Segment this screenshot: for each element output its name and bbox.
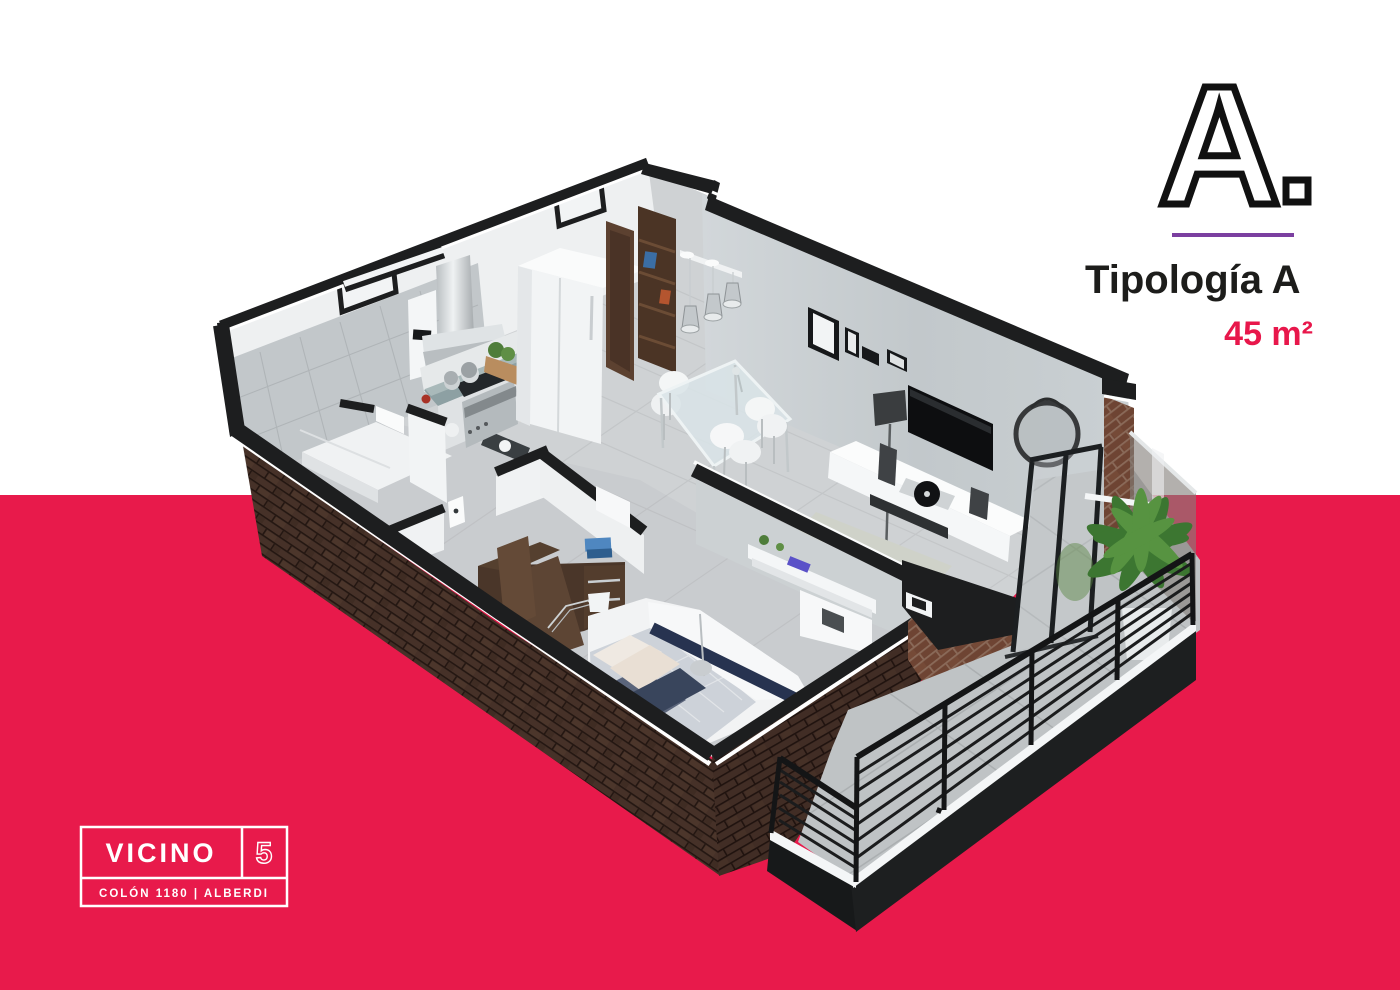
svg-text:VICINO: VICINO [105, 838, 216, 868]
svg-text:5: 5 [256, 837, 273, 870]
svg-text:COLÓN 1180 | ALBERDI: COLÓN 1180 | ALBERDI [99, 887, 269, 900]
svg-text:Tipología A: Tipología A [1085, 258, 1301, 302]
svg-text:A: A [1158, 51, 1281, 241]
svg-text:45 m²: 45 m² [1224, 315, 1313, 353]
